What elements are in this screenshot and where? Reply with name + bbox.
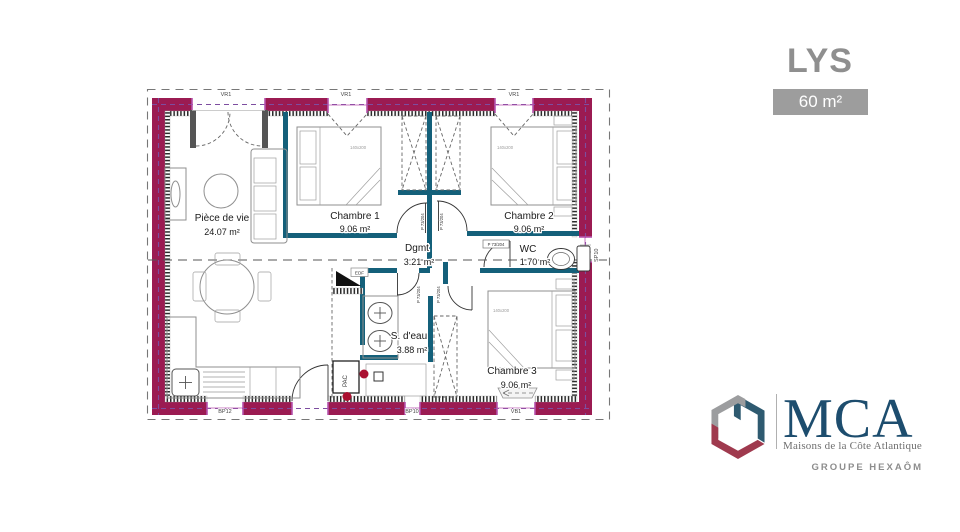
door-code-wc: P 73/204: [488, 242, 505, 247]
page: LYS 60 m²: [0, 0, 960, 532]
kitchen-counter: [167, 317, 300, 398]
side-door-code-sp10: SP10: [594, 249, 600, 262]
window-code-vr1-entry: VR1: [221, 92, 232, 98]
bed-size-ch1: 140x200: [350, 145, 367, 150]
brand-divider: [776, 394, 777, 449]
room-area-s-deau: 3.88 m²: [397, 345, 428, 355]
room-label-chambre-2: Chambre 2: [504, 211, 554, 222]
brand-group: GROUPE HEXAÔM: [783, 462, 923, 473]
window-code-vb1: VB1: [511, 409, 521, 415]
toilet: [548, 246, 591, 271]
room-label-dgmt: Dgmt: [405, 243, 429, 254]
cube-red-piece: [711, 424, 764, 459]
pac-label: PAC: [343, 374, 349, 387]
room-area-wc: 1.70 m²: [520, 257, 551, 267]
room-label-piece-de-vie: Pièce de vie: [195, 213, 250, 224]
brand-tagline: Maisons de la Côte Atlantique: [783, 440, 922, 452]
roof-outline: [148, 90, 610, 420]
brand-name: MCA: [783, 391, 914, 447]
room-area-chambre-3: 9.06 m²: [501, 380, 532, 390]
room-area-chambre-1: 9.06 m²: [340, 224, 371, 234]
dining-set: [193, 253, 271, 322]
door-code-ch2: P 73/204: [439, 213, 444, 230]
plan-title: LYS: [770, 42, 870, 81]
bed-size-ch3: 140x200: [493, 308, 510, 313]
bed-size-ch2: 140x200: [497, 145, 514, 150]
room-label-chambre-1: Chambre 1: [330, 211, 380, 222]
floor-plan: Pièce de vie 24.07 m² Chambre 1 9.06 m² …: [145, 85, 615, 425]
area-badge: 60 m²: [773, 89, 868, 115]
window-code-bp12: BP12: [218, 409, 231, 415]
window-code-vr1-ch2: VR1: [509, 92, 520, 98]
entry-door: [190, 110, 268, 148]
door-code-sdeau: P 73/204: [416, 286, 421, 303]
bed-chambre-1: [297, 127, 381, 205]
bed-chambre-3: [488, 279, 575, 380]
bed-chambre-2: [491, 116, 576, 216]
room-label-chambre-3: Chambre 3: [487, 366, 537, 377]
door-code-ch1: P 73/204: [420, 213, 425, 230]
cube-blue-piece: [734, 397, 765, 443]
room-label-s-deau: S. d'eau: [391, 331, 427, 342]
edf-label: EDF: [355, 271, 364, 276]
door-code-ch3: P 73/204: [436, 286, 441, 303]
room-area-chambre-2: 9.06 m²: [514, 224, 545, 234]
window-code-vr1-ch1: VR1: [341, 92, 352, 98]
room-area-dgmt: 3.21 m²: [404, 257, 435, 267]
interior-walls: [283, 112, 579, 362]
window-code-bp10: BP10: [405, 409, 418, 415]
room-label-wc: WC: [520, 244, 537, 255]
room-area-piece-de-vie: 24.07 m²: [204, 227, 240, 237]
mca-cube-logo: [704, 393, 772, 461]
title-block: LYS: [770, 42, 870, 81]
